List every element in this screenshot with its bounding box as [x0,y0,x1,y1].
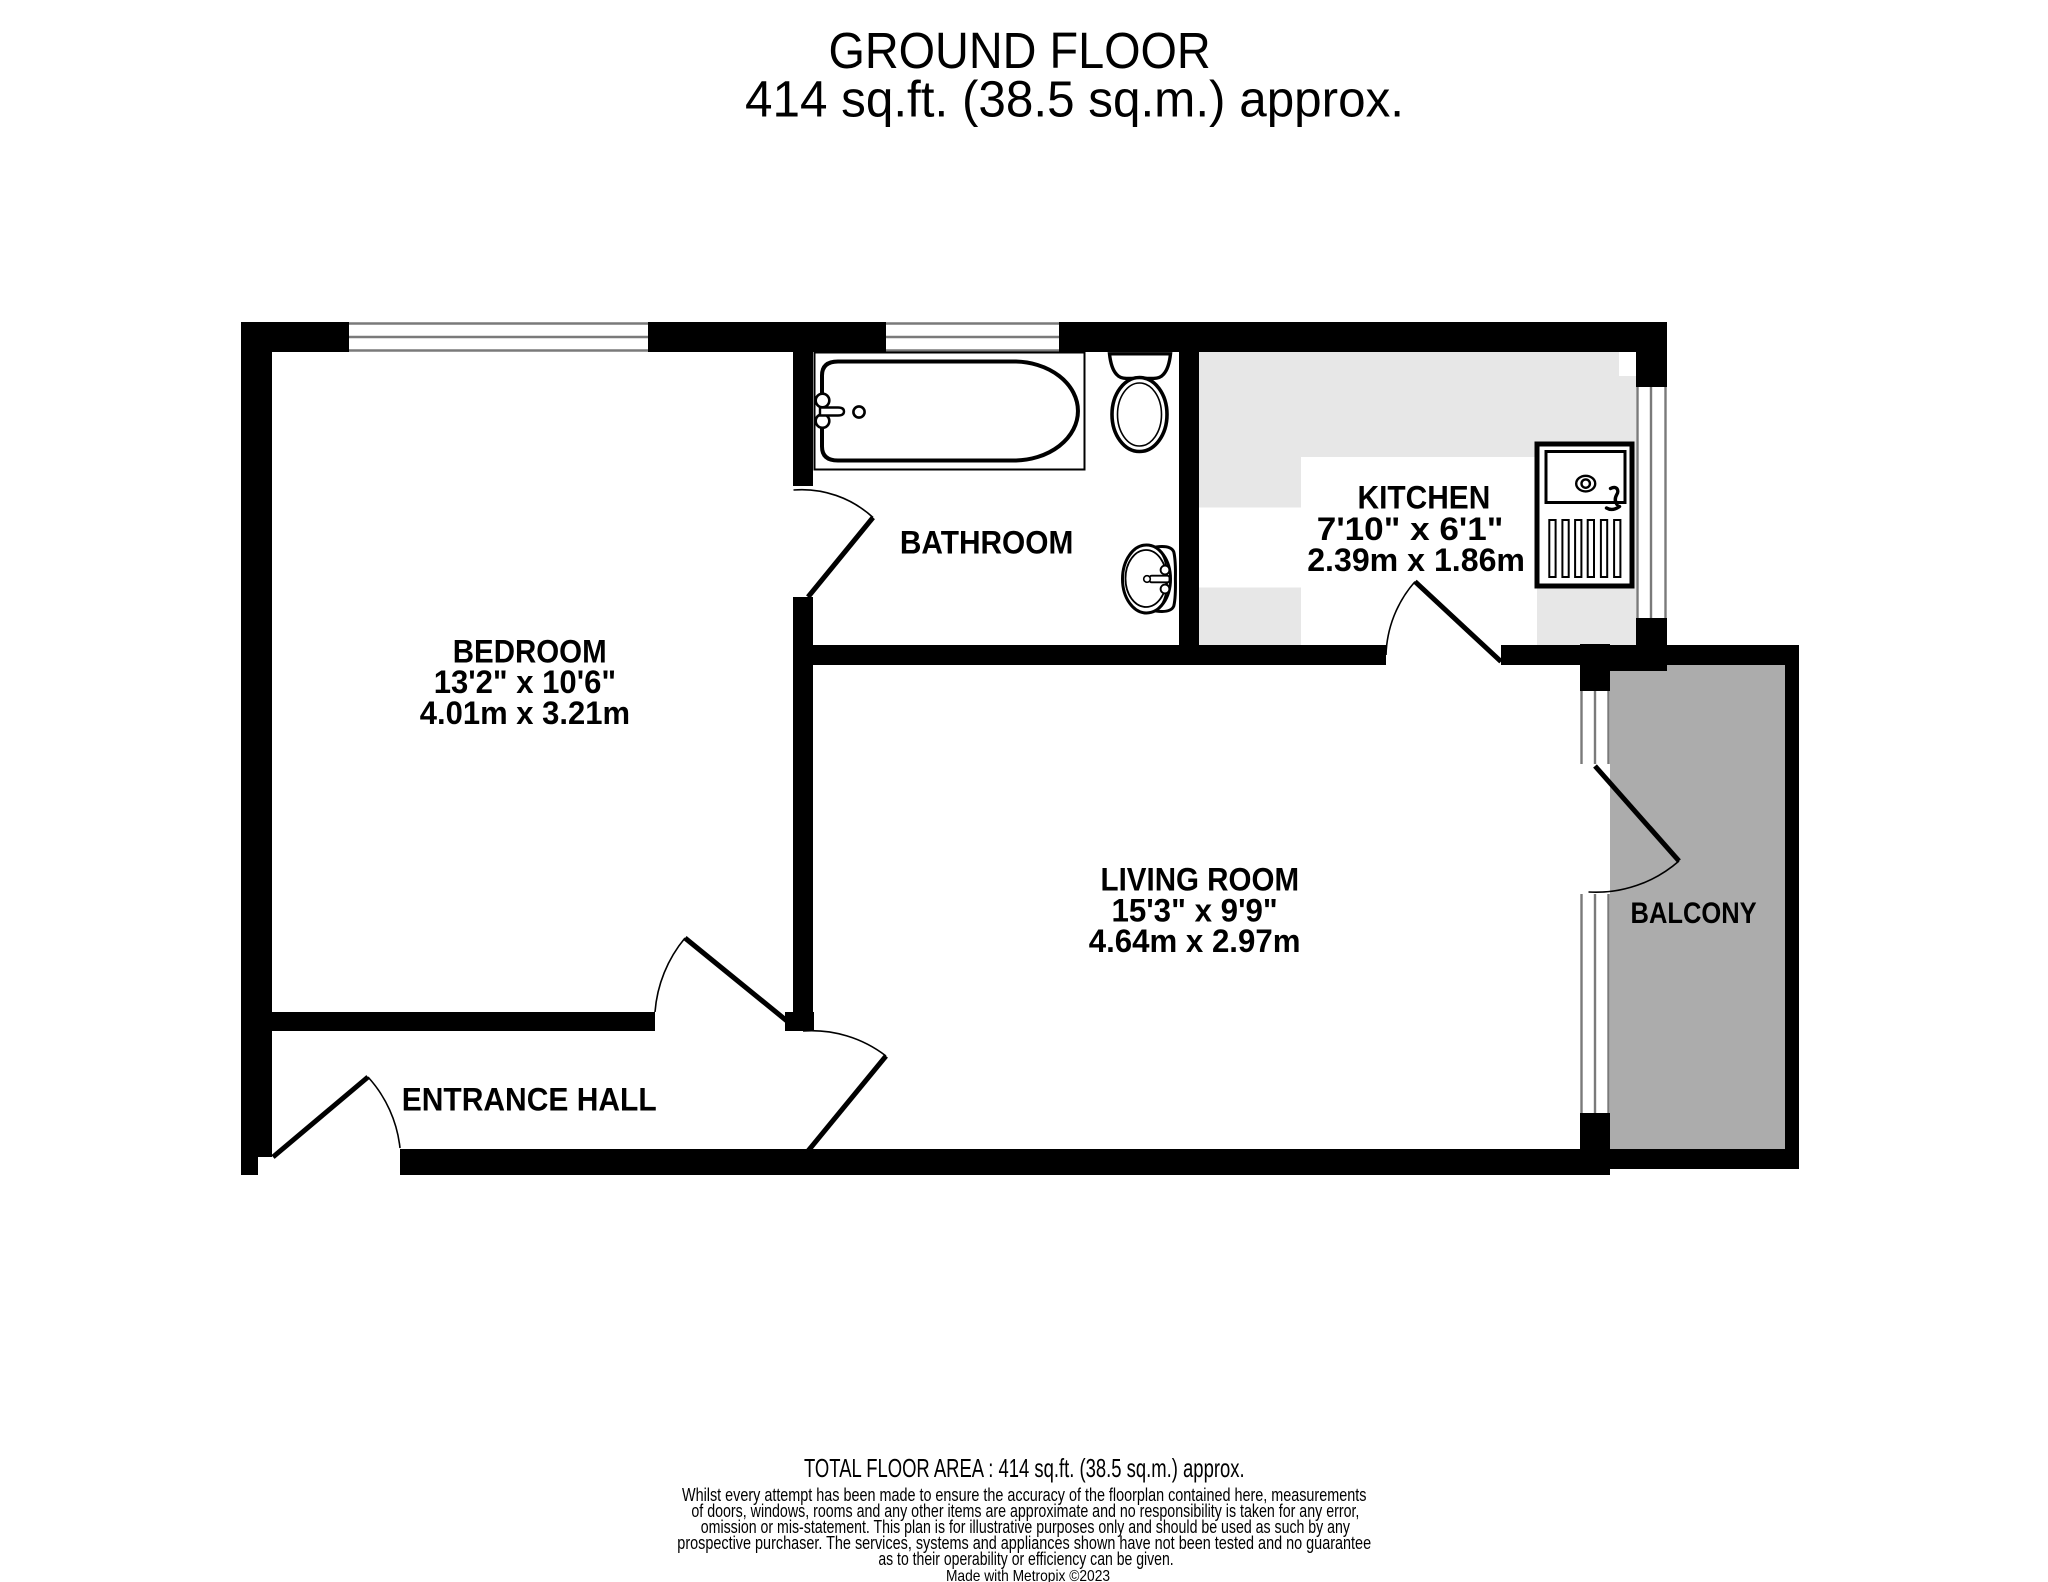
svg-text:414 sq.ft. (38.5 sq.m.) approx: 414 sq.ft. (38.5 sq.m.) approx. [745,70,1404,127]
svg-text:BALCONY: BALCONY [1631,897,1757,930]
svg-text:2.39m x 1.86m: 2.39m x 1.86m [1307,542,1525,578]
svg-text:TOTAL FLOOR AREA : 414 sq.ft.: TOTAL FLOOR AREA : 414 sq.ft. (38.5 sq.m… [804,1455,1245,1483]
svg-text:as to their operability or eff: as to their operability or efficiency ca… [878,1548,1173,1569]
svg-text:4.01m x 3.21m: 4.01m x 3.21m [420,695,630,731]
svg-text:Made with Metropix ©2023: Made with Metropix ©2023 [946,1568,1110,1582]
svg-text:ENTRANCE HALL: ENTRANCE HALL [402,1082,657,1118]
svg-text:BATHROOM: BATHROOM [900,525,1074,561]
svg-text:4.64m x 2.97m: 4.64m x 2.97m [1089,923,1301,959]
